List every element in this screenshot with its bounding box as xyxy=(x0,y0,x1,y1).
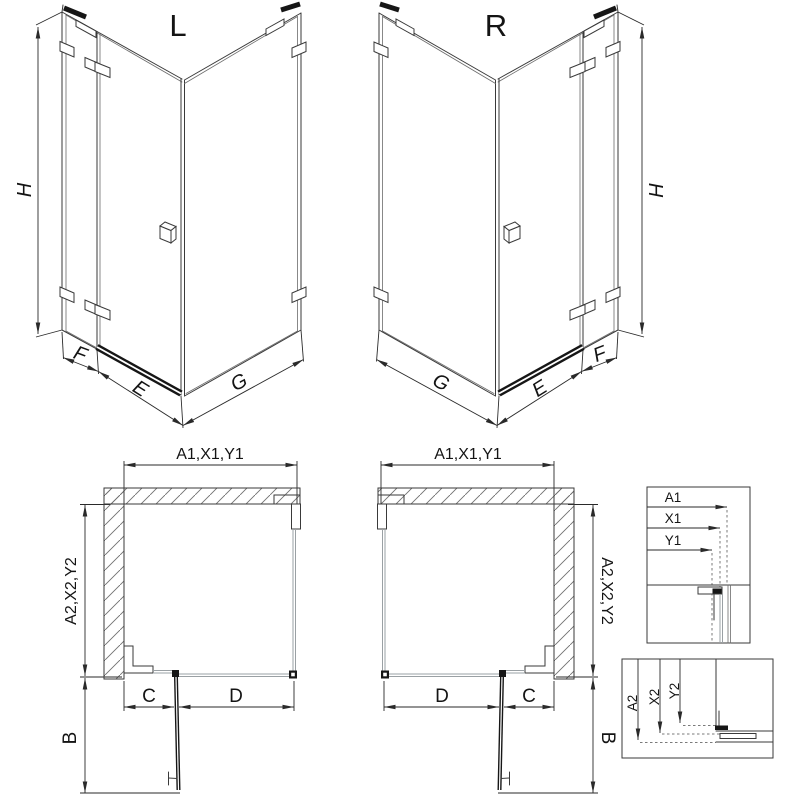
detail-label-y2: Y2 xyxy=(667,683,682,700)
plan-right-b-label: B xyxy=(597,732,618,745)
plan-left-b-label: B xyxy=(60,732,81,745)
detail-box-width-dims: A1 X1 Y1 xyxy=(647,487,750,643)
plan-right-d-label: D xyxy=(435,686,449,707)
detail-label-x1: X1 xyxy=(665,511,682,526)
plan-right-top-dim-label: A1,X1,Y1 xyxy=(434,446,502,463)
plan-left-top-dim-label: A1,X1,Y1 xyxy=(176,446,244,463)
detail-label-a1: A1 xyxy=(665,490,682,505)
detail-label-x2: X2 xyxy=(647,689,662,706)
plan-left-c-label: C xyxy=(142,686,156,707)
dim-label-e-left: E xyxy=(129,376,153,402)
variant-label-left: L xyxy=(169,8,186,43)
corner-profile-section xyxy=(715,659,773,742)
variant-label-right: R xyxy=(485,8,507,43)
plan-right-side-dim-label: A2,X2,Y2 xyxy=(598,557,615,625)
detail-box-depth-dims: A2 X2 Y2 xyxy=(622,659,773,758)
wall-hatching xyxy=(104,488,574,679)
dim-label-e-right: E xyxy=(528,376,552,402)
shower-enclosure-diagram: A1 X1 Y1 A2 X2 Y2 L H F E G R H xyxy=(0,0,800,800)
corner-profile-section xyxy=(698,585,731,643)
plan-right-c-label: C xyxy=(522,686,536,707)
dim-label-f-left: F xyxy=(71,342,92,368)
technical-drawing-sheet: A1 X1 Y1 A2 X2 Y2 L H F E G R H xyxy=(0,0,800,800)
dim-label-f-right: F xyxy=(590,341,611,367)
detail-label-a2: A2 xyxy=(625,695,640,712)
detail-label-y1: Y1 xyxy=(665,533,682,548)
dim-label-g-left: G xyxy=(227,369,251,396)
dim-label-h-right: H xyxy=(644,183,666,198)
dim-label-g-right: G xyxy=(429,369,453,396)
dim-label-h-left: H xyxy=(14,182,36,197)
plan-left-d-label: D xyxy=(229,686,243,707)
plan-left-side-dim-label: A2,X2,Y2 xyxy=(63,557,80,625)
